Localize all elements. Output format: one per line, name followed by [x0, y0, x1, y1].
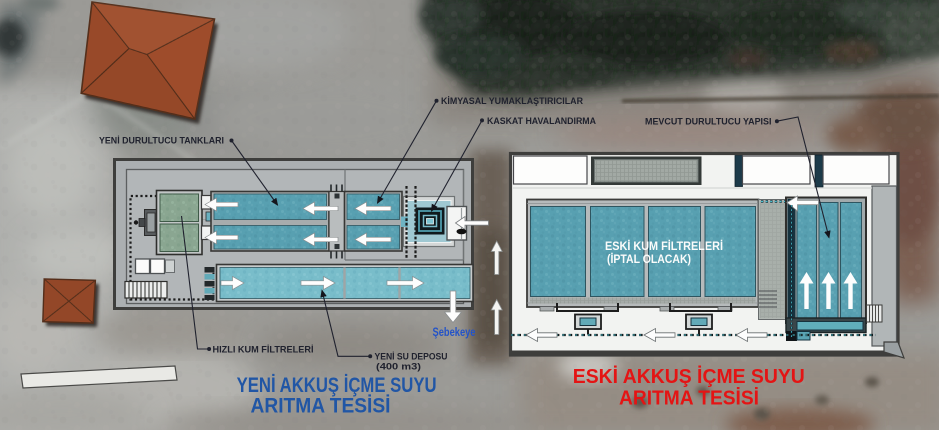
svg-text:YENİ DURULTUCU TANKLARI: YENİ DURULTUCU TANKLARI [99, 136, 224, 146]
svg-text:ESKİ KUM FİLTRELERİ: ESKİ KUM FİLTRELERİ [605, 240, 723, 253]
svg-text:ARITMA TESİSİ: ARITMA TESİSİ [619, 387, 759, 410]
svg-text:ESKİ AKKUŞ İÇME SUYU: ESKİ AKKUŞ İÇME SUYU [573, 365, 805, 388]
svg-text:Şebekeye: Şebekeye [433, 327, 476, 339]
svg-text:HIZLI KUM FİLTRELERİ: HIZLI KUM FİLTRELERİ [213, 345, 314, 355]
svg-text:(İPTAL OLACAK): (İPTAL OLACAK) [607, 253, 691, 266]
svg-text:(400 m3): (400 m3) [376, 362, 421, 372]
svg-text:ARITMA TESİSİ: ARITMA TESİSİ [251, 395, 391, 418]
svg-text:KASKAT HAVALANDIRMA: KASKAT HAVALANDIRMA [487, 116, 596, 126]
svg-text:MEVCUT DURULTUCU YAPISI: MEVCUT DURULTUCU YAPISI [645, 117, 772, 127]
svg-text:KİMYASAL YUMAKLAŞTIRICILAR: KİMYASAL YUMAKLAŞTIRICILAR [441, 96, 583, 106]
svg-text:YENİ SU DEPOSU: YENİ SU DEPOSU [375, 352, 448, 362]
